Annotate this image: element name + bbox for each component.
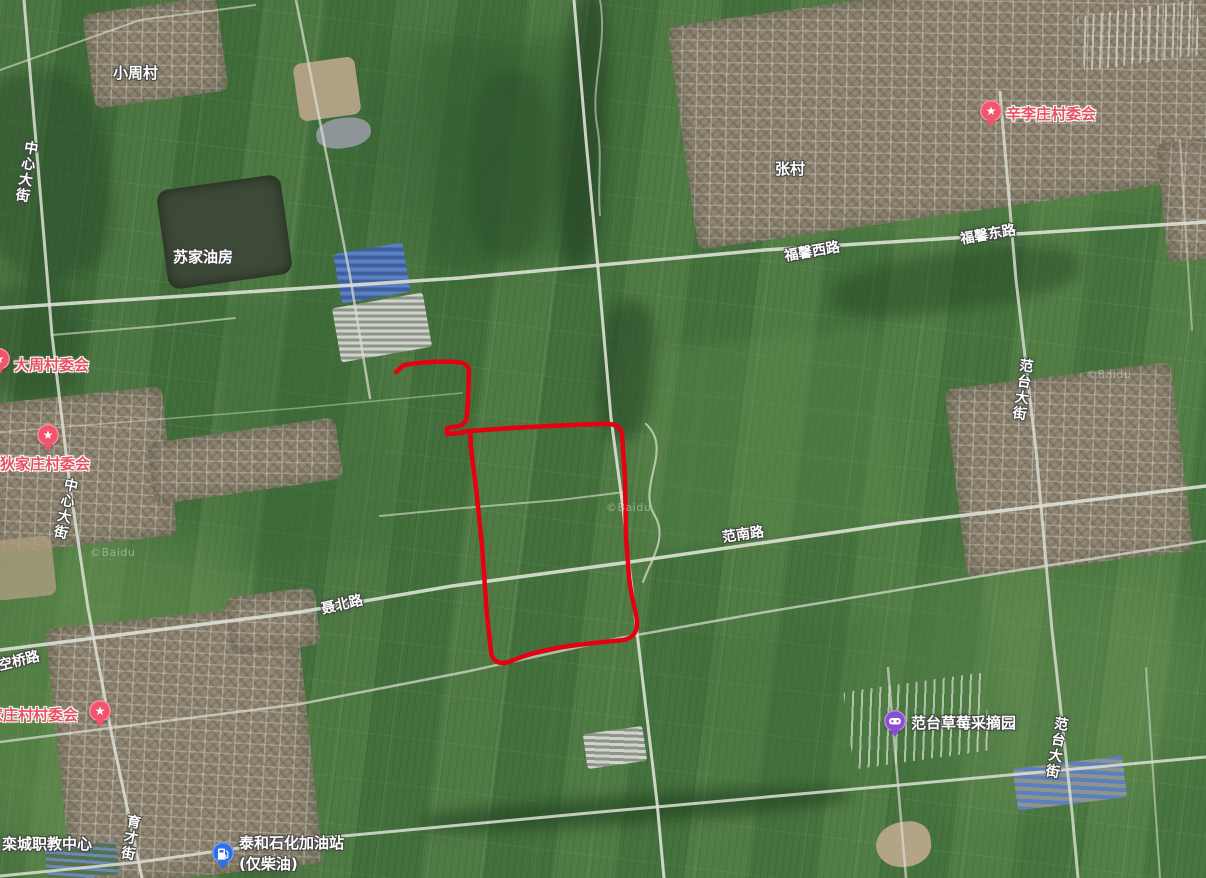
star-icon: ★ (986, 105, 997, 117)
red-boundary-hook (396, 362, 469, 434)
village-label-sujiayoufang: 苏家油房 (173, 246, 233, 267)
poi-label-xinlizhuang-committee[interactable]: 辛李庄村委会 (1006, 103, 1096, 124)
village-label-xiaozhoucun: 小周村 (113, 62, 158, 83)
red-boundary-loop (470, 424, 637, 663)
poi-label-dazhoucun-committee[interactable]: 大周村委会 (14, 354, 89, 375)
star-icon: ★ (95, 705, 106, 717)
poi-label-jiazhuangcun-committee[interactable]: 家庄村村委会 (0, 704, 78, 725)
baidu-watermark: ©Baidu (606, 501, 651, 514)
baidu-watermark: ©Baidu (1086, 368, 1131, 381)
poi-pin-strawberry-farm[interactable] (884, 710, 906, 732)
poi-label-strawberry-farm[interactable]: 范台草莓采摘园 (911, 712, 1016, 733)
poi-pin-jiazhuangcun-committee[interactable]: ★ (89, 700, 111, 722)
gas-pump-icon (217, 847, 230, 860)
red-boundary-annotation (0, 0, 1206, 878)
poi-label-gas-station-note[interactable]: (仅柴油) (239, 853, 298, 874)
poi-label-gas-station-name[interactable]: 泰和石化加油站 (239, 832, 344, 853)
poi-label-luancheng-vocational-center: 栾城职教中心 (2, 833, 92, 854)
star-icon: ★ (0, 353, 4, 365)
satellite-map[interactable]: ©Baidu ©Baidu ©Baidu 小周村 中心大街 苏家油房 ★ 大周村… (0, 0, 1206, 878)
star-icon: ★ (43, 429, 54, 441)
poi-pin-dijiazhuang-committee[interactable]: ★ (37, 424, 59, 446)
poi-pin-xinlizhuang-committee[interactable]: ★ (980, 100, 1002, 122)
baidu-watermark: ©Baidu (90, 546, 135, 559)
village-label-zhangcun: 张村 (775, 158, 805, 179)
poi-label-dijiazhuang-committee[interactable]: 狄家庄村委会 (0, 453, 90, 474)
poi-pin-gas-station[interactable] (212, 842, 234, 864)
leisure-icon (888, 714, 902, 728)
